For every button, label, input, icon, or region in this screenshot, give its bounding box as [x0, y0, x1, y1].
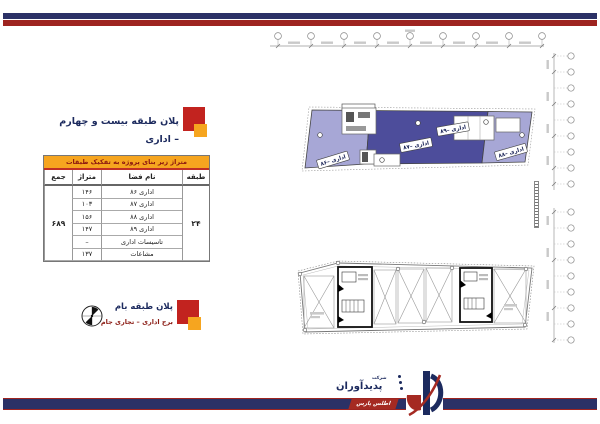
roof-title: پلان طبقه بام	[100, 301, 173, 314]
space-name-cell: اداری ۸۶	[101, 186, 182, 199]
floor-24-title: پلان طبقه بیست و چهارم – اداری	[55, 113, 179, 149]
title-orange-square-icon	[188, 317, 201, 330]
space-name-cell: اداری ۸۷	[101, 199, 182, 212]
space-area-cell: ۱۴۶	[72, 186, 101, 199]
col-header-floor: طبقه	[182, 170, 209, 186]
space-area-cell: ۱۳۷	[72, 249, 101, 262]
right-dimension-lines	[544, 50, 582, 350]
logo-dot	[400, 387, 403, 390]
logo-dot	[398, 375, 401, 378]
space-area-cell: –	[72, 236, 101, 249]
top-dimension-line	[266, 28, 548, 52]
roof-plan	[294, 254, 540, 344]
hatched-edge-strip	[534, 181, 539, 228]
space-name-cell: اداری ۸۸	[101, 211, 182, 224]
area-table: متراژ زیر بنای پروژه به تفکیک طبقات طبقه…	[43, 155, 210, 262]
logo-mark	[404, 368, 444, 418]
space-area-cell: ۱۰۳	[72, 199, 101, 212]
col-header-area: متراژ	[72, 170, 101, 186]
col-header-space: نام فضا	[101, 170, 182, 186]
space-name-cell: اداری ۸۹	[101, 224, 182, 237]
col-header-total: جمع	[44, 170, 72, 186]
space-name-cell: مشاعات	[101, 249, 182, 262]
logo-subname: اطلس پارس	[348, 399, 398, 409]
tower-subtitle: برج اداری – تجاری جام	[93, 316, 173, 328]
drawing-sheet: پلان طبقه بیست و چهارم – اداری متراژ زیر…	[0, 0, 600, 424]
floor-number-cell: ۲۴	[182, 186, 209, 261]
logo-dot	[399, 381, 402, 384]
total-area-cell: ۶۸۹	[44, 186, 72, 261]
top-navy-bar	[3, 13, 597, 19]
bottom-bar	[3, 398, 597, 411]
space-area-cell: ۱۴۷	[72, 224, 101, 237]
floor-24-plan: اداری –۸۶ اداری –۸۷ اداری –۸۹ اداری –۸۸	[296, 86, 542, 188]
title-orange-square-icon	[194, 124, 207, 137]
top-red-bar	[3, 20, 597, 26]
space-area-cell: ۱۵۶	[72, 211, 101, 224]
logo-company-name: پدیدآوران	[336, 381, 397, 392]
area-table-title: متراژ زیر بنای پروژه به تفکیک طبقات	[44, 156, 209, 170]
space-name-cell: تاسیسات اداری	[101, 236, 182, 249]
